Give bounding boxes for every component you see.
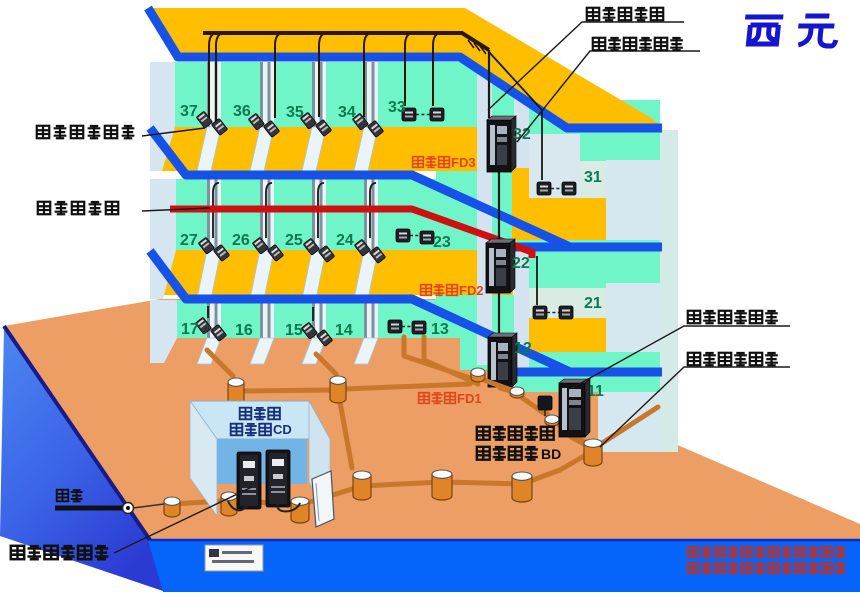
svg-text:35: 35 [286, 104, 304, 121]
svg-text:24: 24 [336, 232, 354, 249]
svg-text:12: 12 [514, 340, 532, 357]
svg-text:27: 27 [180, 232, 198, 249]
svg-text:23: 23 [433, 234, 451, 251]
svg-text:16: 16 [235, 322, 253, 339]
svg-text:31: 31 [584, 169, 602, 186]
svg-text:CD: CD [273, 422, 292, 437]
svg-text:22: 22 [512, 255, 530, 272]
svg-text:17: 17 [181, 321, 199, 338]
svg-text:13: 13 [431, 321, 449, 338]
svg-text:34: 34 [338, 104, 356, 121]
svg-text:BD: BD [541, 446, 561, 462]
svg-text:FD3: FD3 [451, 155, 476, 170]
svg-text:21: 21 [584, 295, 602, 312]
svg-text:36: 36 [233, 103, 251, 120]
svg-text:37: 37 [180, 103, 198, 120]
svg-text:FD2: FD2 [459, 283, 484, 298]
svg-text:FD1: FD1 [457, 391, 482, 406]
svg-text:15: 15 [285, 322, 303, 339]
svg-text:26: 26 [232, 232, 250, 249]
svg-text:33: 33 [388, 99, 406, 116]
svg-text:25: 25 [285, 232, 303, 249]
svg-text:14: 14 [335, 322, 353, 339]
